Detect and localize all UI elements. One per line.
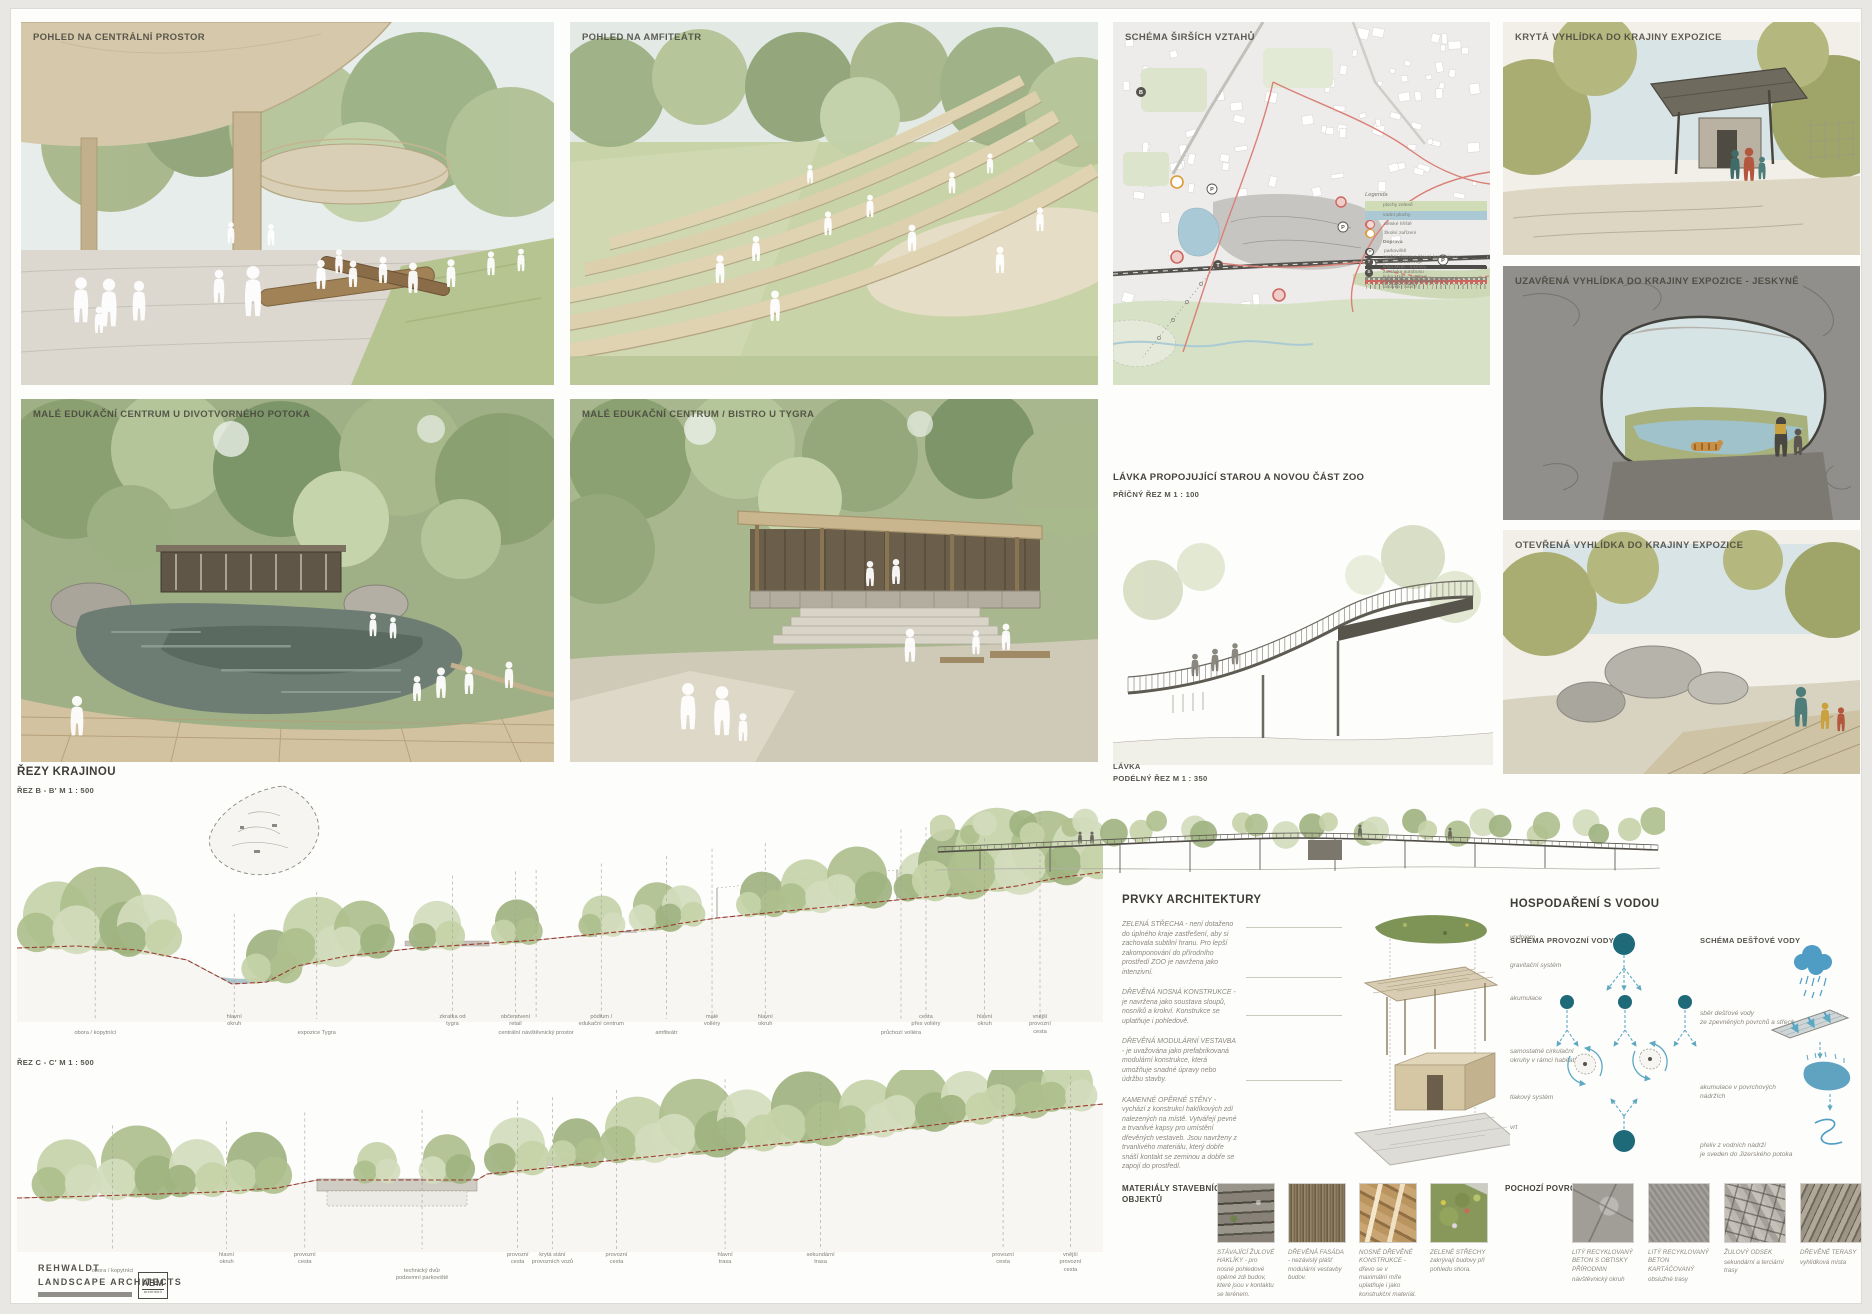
legend-label: lanovka - návrh — [1383, 285, 1416, 290]
legend-item: T zastávka tramvaje — [1365, 258, 1373, 266]
cut-label: obora / kopytníci — [74, 1030, 116, 1037]
cut-label: provozní cesta — [992, 1252, 1014, 1267]
bridge-long-subtitle: PODÉLNÝ ŘEZ M 1 : 350 — [1113, 774, 1208, 783]
water-management: HOSPODAŘENÍ S VODOU SCHÉMA PROVOZNÍ VODY… — [1510, 898, 1868, 1178]
render-lookout-cave: UZAVŘENÁ VYHLÍDKA DO KRAJINY EXPOZICE - … — [1503, 266, 1860, 520]
architecture-axonometry — [1335, 905, 1510, 1190]
render-amphitheater: POHLED NA AMFITEÁTR — [570, 22, 1098, 385]
legend-label: vodní plochy — [1383, 213, 1410, 218]
lookout-cave-scene — [1503, 266, 1860, 520]
cut-label: expozice Tygra — [298, 1030, 336, 1037]
surface-caption: LITÝ RECYKLOVANÝ BETON KARTÁČOVANÝ — [1648, 1249, 1710, 1274]
material-photo — [1217, 1183, 1275, 1243]
legend-title: Legenda — [1365, 192, 1487, 198]
cut-label: občerstvení retail — [501, 1014, 530, 1029]
bus-stop-badge: B — [1139, 90, 1143, 96]
bridge-cross-title: LÁVKA PROPOJUJÍCÍ STAROU A NOVOU ČÁST ZO… — [1113, 472, 1364, 483]
partner-logo-subtext: architekti — [142, 1289, 164, 1294]
legend-item: plochy zeleně — [1365, 201, 1487, 211]
material-card: NOSNÉ DŘEVĚNÉ KONSTRUKCE - dřevo se v ma… — [1359, 1183, 1417, 1299]
surface-card: DŘEVĚNÉ TERASY vyhlídková místa — [1800, 1183, 1862, 1284]
architecture-paragraph: KAMENNÉ OPĚRNÉ STĚNY - vychází z konstru… — [1122, 1096, 1238, 1172]
cut-label: technický dvůr podzemní parkoviště — [396, 1268, 448, 1283]
cut-label: malé voliéry — [704, 1014, 720, 1029]
leader-line — [1246, 977, 1342, 978]
surface-subcaption: obslužné trasy — [1648, 1276, 1710, 1284]
bridge-cross-subtitle: PŘÍČNÝ ŘEZ M 1 : 100 — [1113, 490, 1199, 499]
material-photo — [1288, 1183, 1346, 1243]
material-photo — [1430, 1183, 1488, 1243]
leader-line — [1246, 927, 1342, 928]
material-caption: NOSNÉ DŘEVĚNÉ KONSTRUKCE - dřevo se v ma… — [1359, 1249, 1417, 1299]
architecture-paragraph: DŘEVĚNÁ NOSNÁ KONSTRUKCE - je navržena j… — [1122, 988, 1238, 1026]
panel-title-lookout-open: OTEVŘENÁ VYHLÍDKA DO KRAJINY EXPOZICE — [1515, 540, 1743, 551]
legend-swatch-icon — [1365, 212, 1379, 218]
partner-logo: ABM architekti — [138, 1272, 168, 1299]
cut-label: amfiteátr — [655, 1030, 677, 1037]
cut-label: provozní cesta — [606, 1252, 628, 1267]
bridge-long-drawing — [930, 788, 1665, 882]
surface-caption: DŘEVĚNÉ TERASY — [1800, 1249, 1862, 1257]
architecture-paragraph: DŘEVĚNÁ MODULÁRNÍ VESTAVBA - je uvažován… — [1122, 1037, 1238, 1085]
cut-label: cesta přes voliéry — [911, 1014, 940, 1029]
surfaces-cards: LITÝ RECYKLOVANÝ BETON S OBTISKY PŘÍRODN… — [1572, 1183, 1862, 1284]
cut-label: vnější provozní cesta — [1059, 1252, 1081, 1274]
legend-swatch-icon: B — [1365, 269, 1373, 277]
cut-label: zkratka od tygra — [439, 1014, 465, 1029]
render-amphitheater-scene — [570, 22, 1098, 385]
legend-item: dětské hřiště — [1365, 220, 1374, 229]
landscape-section-c — [17, 1070, 1103, 1252]
legend-swatch-icon — [1365, 285, 1379, 289]
surface-card: ŽULOVÝ ODSEK sekundární a terciární tras… — [1724, 1183, 1786, 1284]
surface-caption: LITÝ RECYKLOVANÝ BETON S OBTISKY PŘÍRODN… — [1572, 1249, 1634, 1274]
render-edu-pond: MALÉ EDUKAČNÍ CENTRUM U DIVOTVORNÉHO POT… — [21, 399, 554, 762]
bridge-long-title: LÁVKA — [1113, 762, 1141, 771]
legend-label: Doprava — [1383, 240, 1403, 245]
parking-badge: P — [1210, 187, 1214, 193]
leader-line — [1246, 1015, 1342, 1016]
material-photo — [1359, 1183, 1417, 1243]
panel-title-amphitheater: POHLED NA AMFITEÁTR — [582, 32, 701, 43]
partner-logo-text: ABM — [139, 1278, 167, 1288]
edu-pond-scene — [21, 399, 554, 762]
panel-title-edu-pond: MALÉ EDUKAČNÍ CENTRUM U DIVOTVORNÉHO POT… — [33, 409, 310, 420]
render-lookout-open: OTEVŘENÁ VYHLÍDKA DO KRAJINY EXPOZICE — [1503, 530, 1860, 774]
architecture-paragraph: ZELENÁ STŘECHA - není dotaženo do úplnéh… — [1122, 920, 1238, 977]
edu-bistro-scene — [570, 399, 1098, 762]
legend-swatch-icon — [1366, 229, 1375, 238]
parking-badge: P — [1341, 225, 1345, 231]
architecture-title: PRVKY ARCHITEKTURY — [1122, 894, 1261, 906]
legend-item: lanovka - návrh — [1365, 285, 1487, 289]
materials-cards: STÁVAJÍCÍ ŽULOVÉ HAKLÍKY - pro nosné poh… — [1217, 1183, 1488, 1299]
cut-label: hlavní okruh — [219, 1252, 234, 1267]
material-card: DŘEVĚNÁ FASÁDA - nezávislý plášť modulár… — [1288, 1183, 1346, 1299]
map-legend: Legenda plochy zeleně vodní plochy dětsk… — [1365, 192, 1487, 289]
legend-swatch-icon: T — [1365, 258, 1373, 266]
surface-subcaption: návštěvnický okruh — [1572, 1276, 1634, 1284]
panel-title-central: POHLED NA CENTRÁLNÍ PROSTOR — [33, 32, 205, 43]
legend-list: plochy zeleně vodní plochy dětské hřiště… — [1365, 201, 1487, 289]
legend-item: P parkoviště — [1365, 248, 1373, 256]
sections-title: ŘEZY KRAJINOU — [17, 766, 116, 778]
section-c-label: ŘEZ C - C' M 1 : 500 — [17, 1058, 94, 1067]
cut-label: provozní cesta — [294, 1252, 316, 1267]
materials-title: MATERIÁLY STAVEBNÍCH OBJEKTŮ — [1122, 1184, 1226, 1206]
legend-item: osobní doprava-hlavní komunikace — [1365, 256, 1487, 259]
architecture-paragraphs: ZELENÁ STŘECHA - není dotaženo do úplnéh… — [1122, 920, 1242, 1183]
legend-item: Školní zařízení — [1365, 229, 1374, 238]
section-b-cut-labels: obora / kopytnícihlavní okruhexpozice Ty… — [17, 1014, 1103, 1060]
material-caption: DŘEVĚNÁ FASÁDA - nezávislý plášť modulár… — [1288, 1249, 1346, 1282]
cut-label: provozní cesta — [507, 1252, 529, 1267]
legend-label: osobní doprava-hlavní komunikace — [1383, 255, 1459, 260]
legend-item: linka MHD - tramvaj — [1365, 266, 1487, 268]
studio-logo-bar — [38, 1292, 132, 1297]
surface-photo — [1572, 1183, 1634, 1243]
legend-item: vodní plochy — [1365, 211, 1487, 221]
surface-photo — [1648, 1183, 1710, 1243]
legend-label: parkoviště — [1384, 249, 1406, 254]
material-caption: ZELENÉ STŘECHY zakrývají budovy při pohl… — [1430, 1249, 1488, 1274]
surface-subcaption: vyhlídková místa — [1800, 1259, 1862, 1267]
cut-label: hlavní okruh — [758, 1014, 773, 1029]
presentation-board: POHLED NA CENTRÁLNÍ PROSTOR P — [0, 0, 1872, 1314]
render-central-space: POHLED NA CENTRÁLNÍ PROSTOR — [21, 22, 554, 385]
surface-card: LITÝ RECYKLOVANÝ BETON KARTÁČOVANÝ obslu… — [1648, 1183, 1710, 1284]
cut-label: hlavní okruh — [227, 1014, 242, 1029]
render-central-scene — [21, 22, 554, 385]
cut-label: pódium / edukační centrum — [579, 1014, 624, 1029]
render-lookout-covered: KRYTÁ VYHLÍDKA DO KRAJINY EXPOZICE — [1503, 22, 1860, 255]
section-b-label: ŘEZ B - B' M 1 : 500 — [17, 786, 94, 795]
legend-label: Školní zařízení — [1384, 231, 1416, 236]
material-card: STÁVAJÍCÍ ŽULOVÉ HAKLÍKY - pro nosné poh… — [1217, 1183, 1275, 1299]
surface-caption: ŽULOVÝ ODSEK — [1724, 1249, 1786, 1257]
render-edu-bistro: MALÉ EDUKAČNÍ CENTRUM / BISTRO U TYGRA — [570, 399, 1098, 762]
legend-label: dětské hřiště — [1384, 222, 1412, 227]
lookout-open-scene — [1503, 530, 1860, 774]
cut-label: centrální návštěvnický prostor — [498, 1030, 573, 1037]
lookout-covered-scene — [1503, 22, 1860, 255]
material-card: ZELENÉ STŘECHY zakrývají budovy při pohl… — [1430, 1183, 1488, 1299]
cut-label: průchozí voliéra — [881, 1030, 921, 1037]
legend-swatch-icon — [1366, 220, 1375, 229]
cut-label: hlavní trasa — [717, 1252, 732, 1267]
surface-subcaption: sekundární a terciární trasy — [1724, 1259, 1786, 1275]
map-wider-relations: P P P P T B SCHÉMA ŠIRŠÍCH VZTAHŮ Legend… — [1113, 22, 1490, 385]
cut-label: vnější provozní cesta — [1029, 1014, 1051, 1036]
cut-label: sekundární trasa — [807, 1252, 835, 1267]
legend-item: Doprava — [1365, 238, 1487, 248]
cut-label: krytá stání provozních vozů — [532, 1252, 573, 1267]
surface-photo — [1800, 1183, 1862, 1243]
legend-label: plochy zeleně — [1383, 203, 1413, 208]
cut-label: hlavní okruh — [977, 1014, 992, 1029]
legend-swatch-icon — [1365, 203, 1379, 209]
legend-swatch-icon: P — [1366, 248, 1374, 256]
panel-title-lookout-cave: UZAVŘENÁ VYHLÍDKA DO KRAJINY EXPOZICE - … — [1515, 276, 1799, 287]
surface-card: LITÝ RECYKLOVANÝ BETON S OBTISKY PŘÍRODN… — [1572, 1183, 1634, 1284]
legend-item: B zastávka autobusu — [1365, 269, 1373, 277]
panel-title-lookout-covered: KRYTÁ VYHLÍDKA DO KRAJINY EXPOZICE — [1515, 32, 1722, 43]
panel-title-edu-bistro: MALÉ EDUKAČNÍ CENTRUM / BISTRO U TYGRA — [582, 409, 814, 420]
water-diagram — [1510, 898, 1868, 1178]
leader-line — [1246, 1080, 1342, 1081]
map-title: SCHÉMA ŠIRŠÍCH VZTAHŮ — [1125, 32, 1255, 43]
surface-photo — [1724, 1183, 1786, 1243]
material-caption: STÁVAJÍCÍ ŽULOVÉ HAKLÍKY - pro nosné poh… — [1217, 1249, 1275, 1299]
bridge-cross-drawing — [1113, 505, 1493, 765]
